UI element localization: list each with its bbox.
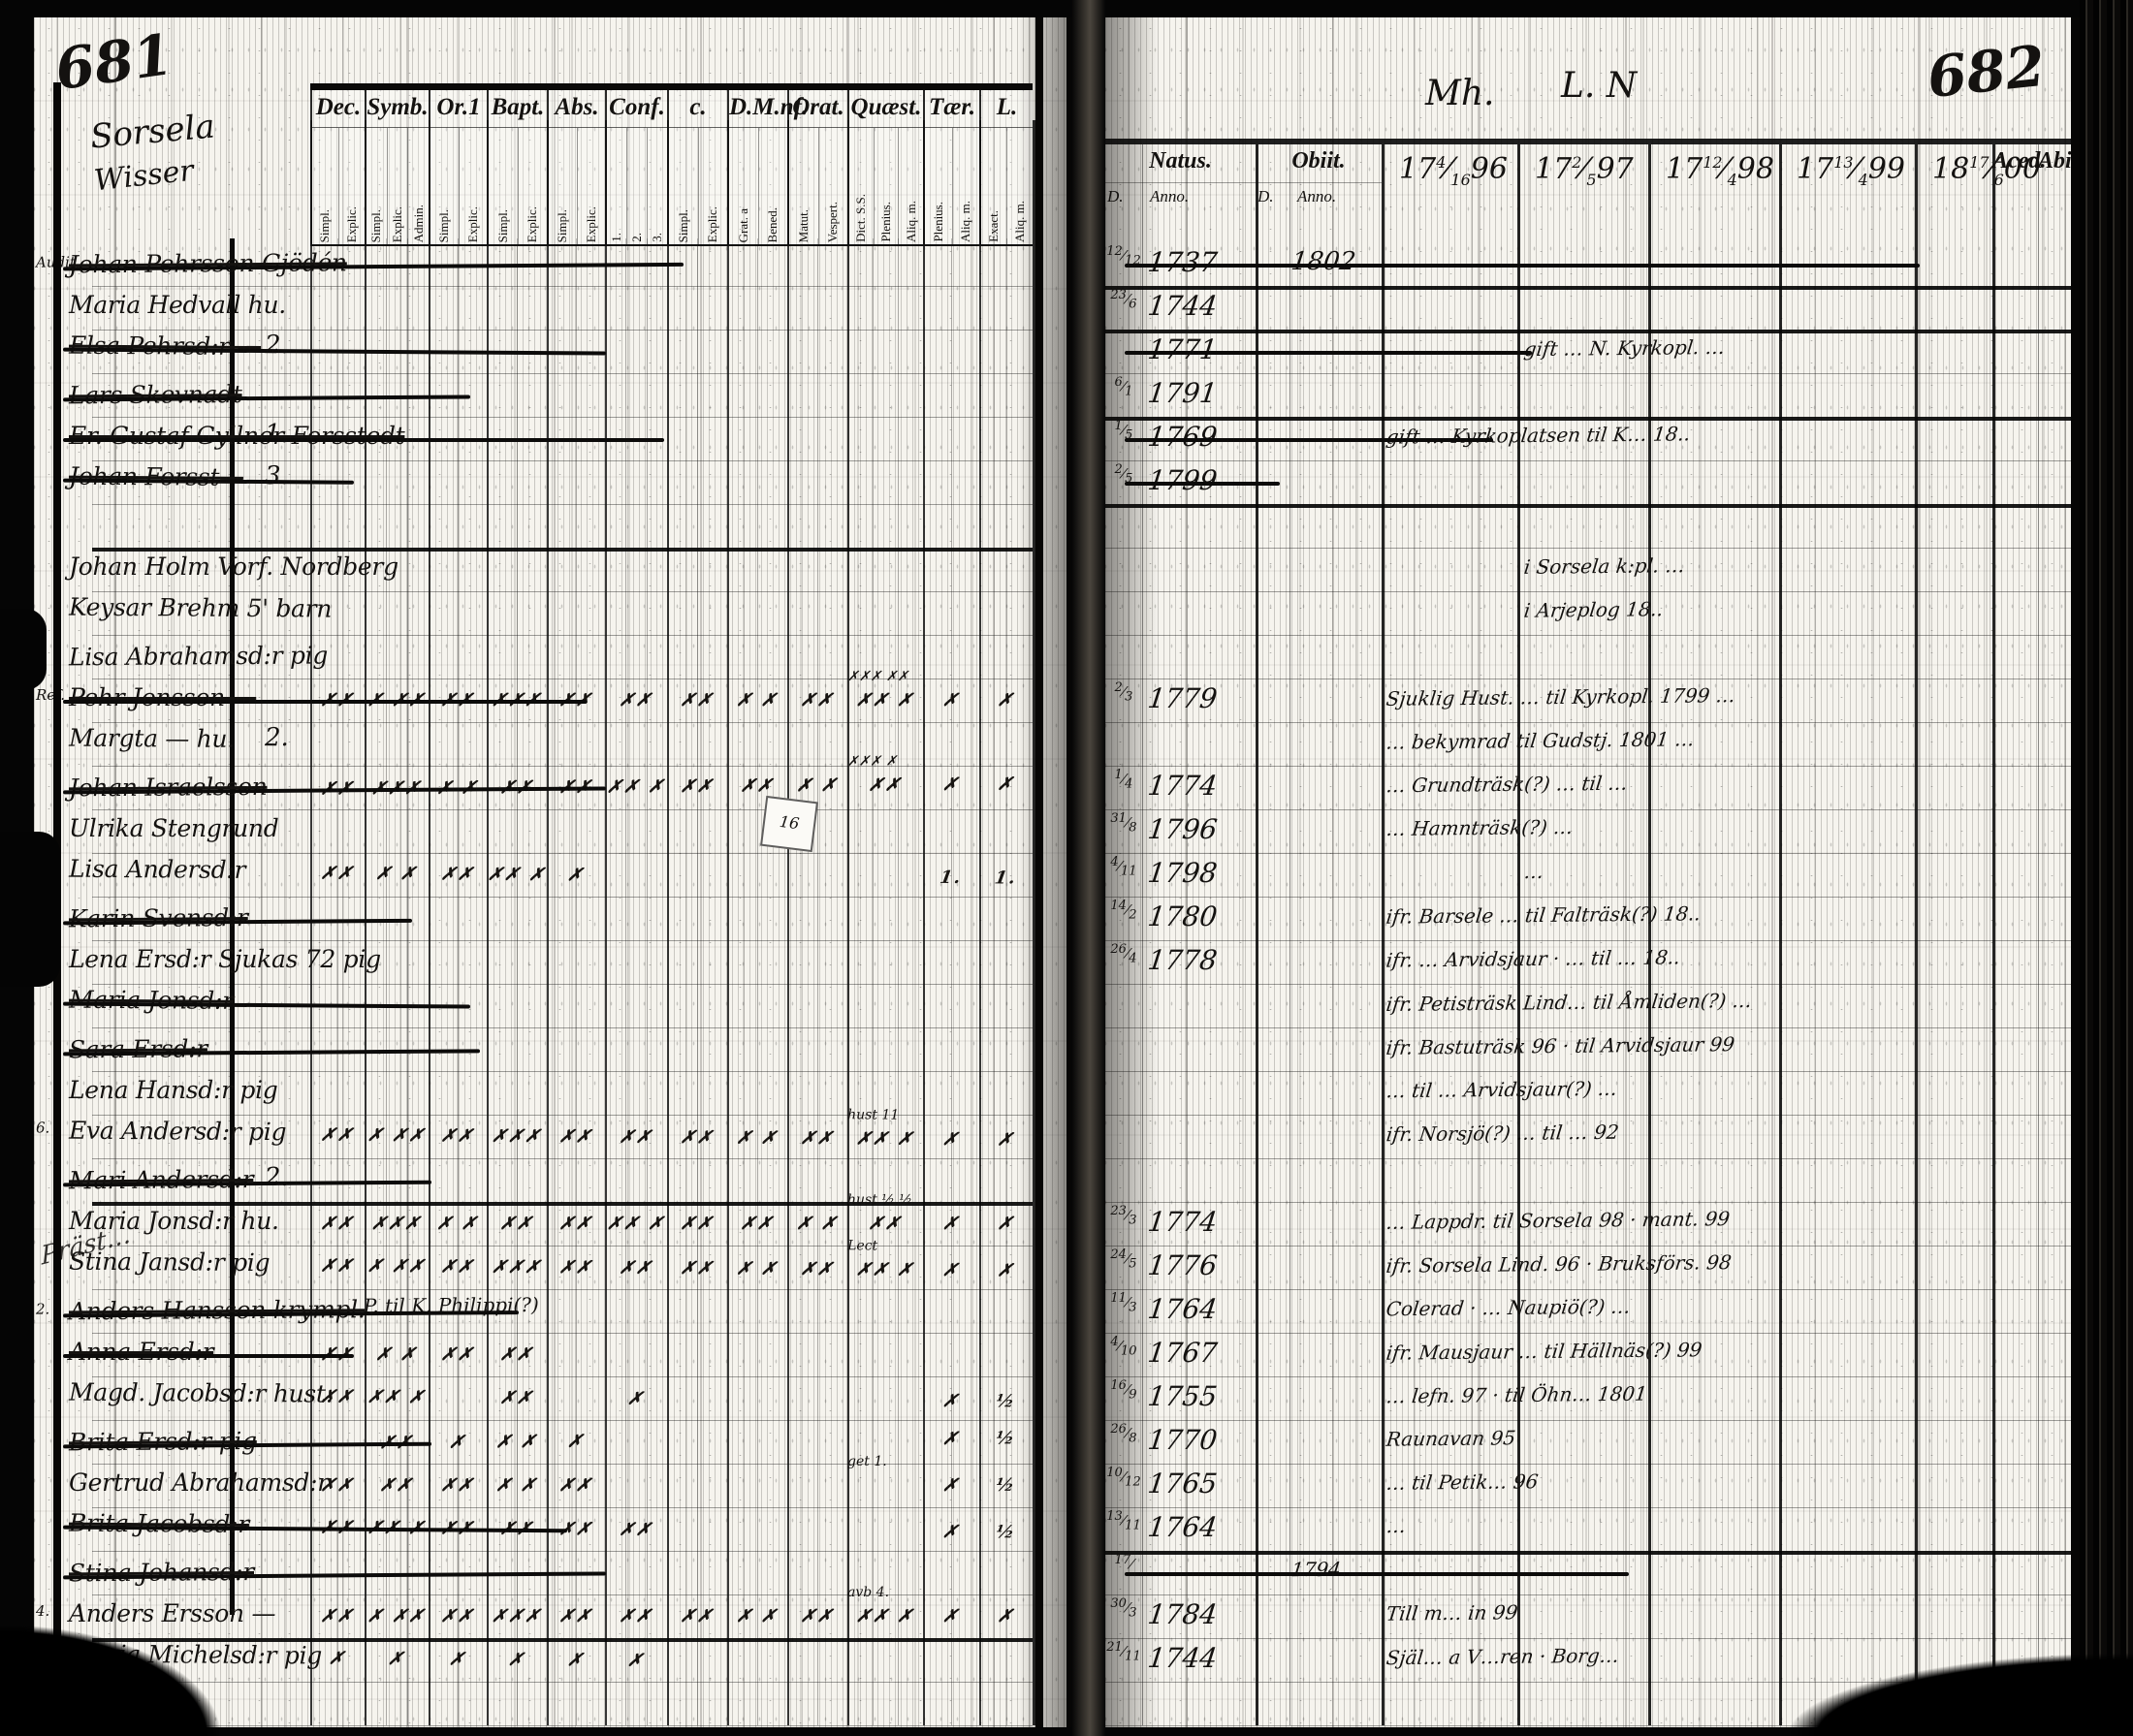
register-row-left: 6.Eva Andersd:r pig✗✗✗ ✗✗✗✗✗✗✗✗✗✗✗✗✗✗ ✗✗… (34, 1111, 1033, 1161)
mark-cell: ✗✗✗ (483, 1246, 550, 1289)
natus-header: Natus. (1105, 148, 1256, 174)
mark-cell (723, 1333, 790, 1376)
mark-cell (601, 854, 670, 898)
register-row-right (1105, 635, 2080, 679)
person-name: Elsa Pehrsd:r — (69, 331, 261, 361)
birth-year: 1769 (1146, 421, 1219, 453)
register-row-left: Johan Israelsson✗✗✗✗✗✗ ✗✗✗✗✗✗✗ ✗✗✗✗✗✗ ✗✗… (34, 762, 1033, 812)
register-row-right: 4⁄101767ifr. Mausjaur … til Hällnäs(?) 9… (1105, 1333, 2080, 1376)
mark-cell: ✗✗ (306, 1374, 367, 1418)
mark-cell (543, 1333, 608, 1376)
mark-cell (723, 1377, 790, 1421)
header-subcolumns: Exact.Aliq. m. (981, 128, 1033, 244)
parish-name-line1: Sorsela (89, 107, 217, 156)
birth-year: 1764 (1146, 1511, 1219, 1543)
mark-cell (723, 1464, 790, 1507)
mark-cell: ✗✗ (425, 1464, 490, 1507)
birth-day: 6⁄1 (1106, 376, 1141, 397)
header-subcolumn: Explic. (459, 128, 488, 244)
strike-line (63, 700, 587, 704)
marks-row: ✗✗✗✗✗✗ (310, 1636, 1033, 1685)
register-row-left: Gertrud Abrahamsd:r✗✗✗✗✗✗✗ ✗✗✗✗½get 1. (34, 1464, 1033, 1507)
person-name: Sara Ersd:r (69, 1034, 207, 1063)
birth-year: 1779 (1146, 682, 1219, 714)
header-column-label: c. (669, 90, 727, 128)
mark-cell: ✗✗ (425, 1245, 490, 1288)
header-subcolumn-label: Aliq. m. (904, 199, 919, 244)
movement-note: 1794 (1290, 1558, 1343, 1582)
marks-row: ✗✗✗✗✗✗✗ ✗✗✗✗½ (310, 1464, 1033, 1507)
header-subcolumn-label: Explic. (584, 205, 599, 244)
register-row-left: 4.Anders Ersson —✗✗✗ ✗✗✗✗✗✗✗✗✗✗✗✗✗✗ ✗✗✗✗… (34, 1594, 1033, 1638)
mark-cell: ✗✗ (601, 1508, 670, 1552)
mark-cell: ✗✗ (306, 1202, 367, 1246)
mark-cell (844, 1378, 926, 1422)
birth-year: 1778 (1146, 944, 1219, 976)
movement-note: ifr. Bastuträsk 96 · til Arvidsjaur 99 (1385, 1032, 1735, 1059)
register-row-left: Lisa Andersd:r✗✗✗ ✗✗✗✗✗ ✗✗1.1. (34, 849, 1033, 900)
mark-cell: ✗✗ ✗ (483, 853, 550, 897)
header-subcolumn: Simpl. (669, 128, 698, 244)
fold-line-1 (1035, 0, 1043, 1736)
mark-cell (844, 1509, 926, 1553)
movement-note: … (1385, 1514, 1408, 1537)
person-name: Er. Gustaf Gyllner Forsstedt (69, 422, 404, 450)
header-column-label: Dec. (312, 90, 365, 128)
mark-cell (783, 1509, 850, 1553)
header-column: Abs.Simpl.Explic. (547, 90, 605, 244)
mark-cell: ✗ (919, 679, 982, 722)
birth-day: 26⁄4 (1106, 943, 1141, 964)
movement-note: … Lappdr. til Sorsela 98 · mant. 99 (1385, 1207, 1731, 1234)
person-name: Johan Pehrsson Gjödén (69, 248, 347, 278)
mark-cell: ✗✗ (601, 1247, 670, 1290)
left-page: 681 Sorsela Wisser Präst… Dec.Simpl.Expl… (34, 17, 1071, 1736)
header-column: Tær.Plenius.Aliq. m. (923, 90, 979, 244)
header-subcolumn-label: Aliq. m. (958, 199, 973, 244)
mark-cell (425, 1375, 490, 1419)
mark-cell (664, 1419, 731, 1463)
register-row-right: 24⁄51776ifr. Sorsela Lind. 96 · Bruksför… (1105, 1246, 2080, 1289)
quaest-note: get 1. (847, 1455, 935, 1469)
strike-line (1125, 264, 1920, 268)
header-subcolumns: Simpl.Explic. (312, 128, 365, 244)
header-subcolumn: Aliq. m. (898, 128, 923, 244)
header-subcolumn-label: Explic. (525, 205, 540, 244)
header-subcolumn-label: Aliq. m. (1012, 199, 1028, 244)
death-year: 1802 (1289, 247, 1357, 276)
quaest-note: avb 4. (847, 1586, 935, 1600)
person-name: Lisa Abrahamsd:r pig (69, 641, 328, 671)
register-row-right: 23⁄61744 (1105, 286, 2080, 330)
movement-note: … bekymrad til Gudstj. 1801 … (1385, 727, 1695, 753)
natus-anno-sub: Anno. (1150, 187, 1189, 206)
obiit-day-sub: D. (1258, 187, 1274, 206)
mark-cell: ✗ (483, 1638, 550, 1682)
mark-cell (783, 1333, 850, 1376)
register-row-left: Sara Ersd:r (34, 1024, 1033, 1074)
mark-cell: ✗ ✗✗ (361, 1245, 431, 1288)
natus-day-sub: D. (1107, 187, 1124, 206)
mark-cell: ✗ (975, 1594, 1035, 1638)
birth-day: 30⁄3 (1106, 1597, 1141, 1619)
birth-year: 1755 (1146, 1380, 1219, 1412)
birth-year: 1780 (1146, 900, 1219, 932)
register-row-right: 1771gift … N. Kyrkopl. … (1105, 330, 2080, 373)
year-column-header: 174⁄1696 (1399, 152, 1508, 189)
birth-year: 1744 (1146, 1642, 1219, 1674)
mark-cell: ✗ (975, 1202, 1035, 1246)
header-subcolumn: 2. (626, 128, 647, 244)
strike-line (1125, 1572, 1629, 1576)
movement-note: ifr. Barsele … til Falträsk(?) 18.. (1385, 901, 1702, 928)
mark-cell: ✗ (306, 1636, 367, 1680)
birth-year: 1737 (1146, 246, 1219, 278)
mark-cell (663, 854, 730, 898)
mark-cell: ✗ (976, 762, 1036, 805)
mark-cell: ✗✗ (783, 1247, 850, 1291)
register-row-right (1105, 504, 2080, 548)
mark-cell: ✗✗ ✗ (602, 765, 671, 808)
movement-note: ifr. Mausjaur … til Hällnäs(?) 99 (1385, 1338, 1703, 1364)
birth-year: 1799 (1146, 464, 1219, 496)
mark-cell: ✗✗ (723, 1202, 790, 1246)
mark-cell: ✗✗ (663, 1202, 730, 1246)
marks-row: ✗✗✗ ✗✗✗✗✗ ✗✗1.1. (310, 851, 1033, 900)
marks-row: ✗✗✗✗ ✗✗✗✗✗½ (310, 1374, 1033, 1423)
header-subcolumn-label: Grat. a (736, 206, 751, 244)
mark-cell (602, 1419, 671, 1463)
header-sub-line (1105, 182, 1382, 183)
person-name: Lena Hansd:r pig (69, 1076, 278, 1104)
mark-cell: ✗ (544, 1419, 609, 1463)
mark-cell: ✗ (543, 1638, 608, 1682)
register-row-right: 23⁄31774… Lappdr. til Sorsela 98 · mant.… (1105, 1202, 2080, 1246)
header-subcolumn: Explic. (338, 128, 366, 244)
register-row-right: 10⁄121765… til Petik… 96 (1105, 1464, 2080, 1507)
register-row-right: … bekymrad til Gudstj. 1801 … (1105, 722, 2080, 766)
scan-edge-bottom (0, 1727, 2133, 1736)
person-name: Lisa Andersd:r (69, 855, 245, 884)
register-row-right: 2⁄31779Sjuklig Hust. … til Kyrkopl. 1799… (1105, 679, 2080, 722)
header-subcolumn: Explic. (518, 128, 548, 244)
register-row-right: 2⁄51799 (1105, 460, 2080, 504)
person-name: Gertrud Abrahamsd:r (69, 1468, 329, 1497)
header-subcolumns: Dict. S.S.Plenius.Aliq. m. (849, 128, 923, 244)
header-column-label: Abs. (549, 90, 605, 128)
header-subcolumn-label: Bened. (765, 205, 780, 244)
birth-day: 4⁄11 (1106, 856, 1141, 877)
header-column: L.Exact.Aliq. m. (979, 90, 1033, 244)
person-name: Anna Ersd:r (69, 1338, 213, 1366)
mark-cell: ✗ ✗ (361, 852, 431, 896)
quaest-note: Lect (847, 1239, 935, 1254)
header-subcolumn-label: Simpl. (676, 207, 691, 244)
mark-cell: ✗ (975, 679, 1035, 722)
header-subcolumn-label: Plenius. (931, 200, 946, 244)
birth-day: 16⁄9 (1106, 1379, 1141, 1401)
birth-year: 1744 (1146, 290, 1219, 322)
mark-cell (723, 854, 790, 898)
mark-cell (844, 1333, 926, 1376)
right-page: 682 Mh. L. N Natus.Obiit.Aced.Abit.D.Ann… (1105, 17, 2080, 1736)
person-name: Anders Ersson — (69, 1599, 275, 1627)
row-line (1105, 1725, 2080, 1726)
mark-cell (601, 1333, 670, 1376)
mark-cell (724, 1418, 791, 1462)
mark-cell (844, 1640, 926, 1684)
margin-note: 6. (36, 1119, 67, 1136)
clamp-mark-lower (0, 832, 60, 987)
header-column: D.M.nf.Grat. aBened. (727, 90, 787, 244)
register-row-left: Maria Jonsd:r (34, 980, 1033, 1030)
mark-cell: ✗ ✗ (361, 1333, 431, 1376)
person-name: Stina Johansd:r (69, 1558, 254, 1587)
header-subcolumn: 3. (647, 128, 667, 244)
birth-day: 2⁄3 (1106, 681, 1141, 703)
marks-row: ✗✗✗ ✗✗✗✗✗ (310, 1333, 1033, 1376)
header-subcolumn: Simpl. (430, 128, 459, 244)
header-column: Dec.Simpl.Explic. (310, 90, 365, 244)
mark-cell: ✗ ✗ (723, 1116, 790, 1159)
register-row-left: Elsa Pehrsd:r —2. (34, 326, 1033, 376)
header-column-label: Conf. (607, 90, 667, 128)
person-name: Lena Ersd:r Sjukas 72 pig (69, 945, 381, 973)
right-page-number: 682 (1925, 33, 2049, 110)
header-subcolumn: Simpl. (312, 128, 338, 244)
header-column-label: Quæst. (849, 90, 923, 128)
birth-day: 26⁄8 (1106, 1423, 1141, 1444)
mark-cell: ✗✗ ✗ (844, 679, 926, 722)
register-row-right: 30⁄31784Till m… in 99 (1105, 1594, 2080, 1638)
mark-cell (783, 855, 850, 899)
header-subcolumn: Explic. (698, 128, 728, 244)
mark-cell: ✗✗ (783, 679, 850, 722)
mark-cell: ✗✗ (306, 1594, 367, 1638)
header-column: Symb.Simpl.Explic.Admin. (365, 90, 429, 244)
movement-note: … Grundträsk(?) … til … (1385, 772, 1629, 798)
birth-day: 1⁄4 (1106, 769, 1141, 790)
mark-cell: ✗✗ (306, 1113, 367, 1156)
header-subcolumn: Grat. a (729, 128, 758, 244)
person-name: Maria Jonsd:r (69, 986, 234, 1015)
mark-cell: ✗✗ (783, 1594, 850, 1638)
header-subcolumns: 1.2.3. (607, 128, 667, 244)
header-subcolumn-label: Explic. (344, 205, 360, 244)
register-row-left: Stina Jansd:r pig✗✗✗ ✗✗✗✗✗✗✗✗✗✗✗✗✗✗ ✗✗✗✗… (34, 1242, 1033, 1292)
person-name: Johan Israelsson (69, 773, 268, 802)
scan-edge-right (2080, 0, 2133, 1736)
movement-note: ifr. … Arvidsjaur · … til … 18.. (1385, 945, 1681, 971)
birth-day: 11⁄3 (1106, 1292, 1141, 1313)
right-header: Natus.Obiit.Aced.Abit.D.Anno.D.Anno.174⁄… (1105, 139, 2080, 144)
mark-cell (975, 1333, 1035, 1376)
birth-day: 4⁄10 (1106, 1336, 1141, 1357)
header-subcolumns: Simpl.Explic. (489, 128, 547, 244)
header-subcolumn-label: Simpl. (495, 207, 511, 244)
quaest-note: ✗✗✗ ✗ (847, 754, 935, 770)
mark-cell (663, 1508, 730, 1552)
mark-cell (783, 1378, 850, 1422)
register-row-left: Magd. Jacobsd:r hust.✗✗✗✗ ✗✗✗✗✗½ (34, 1373, 1033, 1423)
birth-year: 1774 (1146, 1206, 1219, 1238)
quaest-note: ✗✗✗ ✗✗ (847, 670, 935, 684)
birth-year: 1765 (1146, 1468, 1219, 1499)
header-subcolumn: Vespert. (818, 128, 848, 244)
paper-repair-tag: 16 (760, 796, 818, 852)
header-column: Conf.1.2.3. (605, 90, 667, 244)
register-row-right: ifr. Norsjö(?) … til … 92 (1105, 1115, 2080, 1158)
register-row-left: Maria Michelsd:r pig✗✗✗✗✗✗ (34, 1634, 1033, 1685)
mark-cell: ✗✗ (601, 679, 670, 722)
header-subcolumn-label: Simpl. (555, 207, 570, 244)
birth-year: 1784 (1146, 1598, 1219, 1630)
header-column-label: Bapt. (489, 90, 547, 128)
register-row-right: i Arjeplog 18.. (1105, 591, 2080, 635)
mark-cell: ✗✗ (543, 1246, 608, 1289)
year-column-header: 1712⁄498 (1666, 152, 1774, 189)
header-subcolumn-label: Vespert. (825, 200, 841, 244)
movement-note: … til … Arvidsjaur(?) … (1385, 1077, 1619, 1102)
register-row-left: Ref.Pehr Jonsson —✗✗✗ ✗✗✗✗✗✗✗✗✗✗✗✗✗✗ ✗✗✗… (34, 679, 1033, 722)
header-column-label: Symb. (366, 90, 429, 128)
header-subcolumn: Explic. (577, 128, 606, 244)
strike-line (1125, 438, 1493, 442)
mark-cell: ✗ (601, 1377, 670, 1421)
mark-cell: ✗ (426, 1420, 491, 1464)
mark-cell: ✗✗ (306, 1464, 367, 1507)
mark-cell: ✗ ✗✗ (361, 1114, 431, 1157)
header-subcolumns: Simpl.Explic.Admin. (366, 128, 429, 244)
birth-day: 21⁄11 (1106, 1641, 1141, 1662)
mark-cell: ½ (975, 1464, 1035, 1507)
header-subcolumns: Simpl.Explic. (430, 128, 487, 244)
mark-cell (543, 1376, 608, 1420)
marks-row: ✗✗✗✗✗✗ ✗✗✗✗✗✗✗ ✗✗✗✗✗✗ ✗✗✗✗✗ (310, 762, 1033, 810)
mark-cell (784, 1418, 851, 1462)
register-row-right: … til … Arvidsjaur(?) … (1105, 1071, 2080, 1115)
header-column-label: Or.1 (430, 90, 487, 128)
movement-note: … lefn. 97 · til Öhn… 1801 (1385, 1382, 1648, 1408)
mark-cell: ✗ ✗ (484, 1420, 551, 1464)
birth-year: 1791 (1146, 377, 1219, 409)
header-column: Or.1Simpl.Explic. (429, 90, 487, 244)
person-name: Lars Skevnadt (69, 380, 242, 409)
header-subcolumn: Aliq. m. (952, 128, 980, 244)
mark-cell: ✗ ✗ (723, 679, 790, 722)
top-annotation-1: Mh. (1425, 74, 1495, 113)
mark-cell: ✗✗ (601, 1116, 670, 1159)
mark-cell: ✗✗ ✗ (601, 1202, 670, 1246)
header-subcolumn-label: Simpl. (317, 207, 333, 244)
birth-day: 24⁄5 (1106, 1248, 1141, 1270)
year-column-header: 1713⁄499 (1797, 152, 1905, 189)
top-annotation-2: L. N (1561, 66, 1637, 106)
register-row-left: Lena Ersd:r Sjukas 72 pig (34, 940, 1033, 984)
strike-line (1125, 351, 1532, 355)
header-subcolumn-label: Simpl. (436, 207, 452, 244)
register-row-right: 12⁄1217371802 (1105, 242, 2080, 286)
birth-year: 1774 (1146, 770, 1219, 802)
mark-cell: ✗✗ ✗ (361, 1375, 431, 1419)
birth-day: 13⁄11 (1106, 1510, 1141, 1531)
mark-cell: ✗ (543, 853, 608, 897)
register-row-right: 14⁄21780ifr. Barsele … til Falträsk(?) 1… (1105, 897, 2080, 940)
register-row-right: 26⁄41778ifr. … Arvidsjaur · … til … 18.. (1105, 940, 2080, 984)
header-subcolumns: Matut.Vespert. (789, 128, 847, 244)
year-column-header: 172⁄597 (1535, 152, 1634, 189)
register-row-right: 26⁄81770Raunavan 95 (1105, 1420, 2080, 1464)
header-column-label: D.M.nf. (729, 90, 787, 128)
mark-cell: ✗✗ (663, 1247, 730, 1290)
header-subcolumn: Explic. (387, 128, 408, 244)
mark-cell (663, 1333, 730, 1376)
year-column-header: 1817⁄600 (1932, 152, 2041, 189)
header-column: Quæst.Dict. S.S.Plenius.Aliq. m. (847, 90, 923, 244)
mark-cell (783, 1640, 850, 1684)
person-name: Eva Andersd:r pig (69, 1117, 286, 1147)
register-row-right: 13⁄111764… (1105, 1507, 2080, 1551)
birth-day: 10⁄12 (1106, 1467, 1141, 1488)
mark-cell: ✗ (919, 1594, 982, 1638)
register-row-left: Ulrika Stengrund (34, 809, 1033, 853)
register-row-left: Er. Gustaf Gyllner Forsstedt1. (34, 417, 1033, 460)
movement-note: i Arjeplog 18.. (1523, 597, 1665, 621)
register-row-right: i Sorsela k:pl. … (1105, 548, 2080, 591)
mark-cell (783, 1464, 850, 1507)
mark-cell: ✗ ✗ (425, 1202, 490, 1246)
header-subcolumn-label: Explic. (390, 205, 405, 244)
register-row-left: Maria Hedvall hu. (34, 286, 1033, 330)
mark-cell: ✗ (919, 1464, 982, 1507)
register-row-right: 21⁄111744Själ… a V…ren · Borg… (1105, 1638, 2080, 1682)
header-subcolumn: Bened. (758, 128, 788, 244)
mark-cell: ✗✗ (483, 1202, 550, 1246)
obiit-header: Obiit. (1256, 148, 1382, 174)
register-row-left: Karin Svensd:r (34, 893, 1033, 943)
mark-cell: ✗✗✗ (483, 1594, 550, 1638)
register-row-right: 16⁄91755… lefn. 97 · til Öhn… 1801 (1105, 1376, 2080, 1420)
movement-note: Själ… a V…ren · Borg… (1385, 1644, 1621, 1670)
header-subcolumns: Simpl.Explic. (549, 128, 605, 244)
birth-year: 1764 (1146, 1293, 1219, 1325)
mark-cell: ✗✗ (543, 1464, 608, 1507)
header-subcolumn-label: Matut. (796, 207, 812, 244)
strike-line (63, 1354, 354, 1358)
register-row-left (34, 500, 1033, 551)
header-subcolumn: Plenius. (925, 128, 952, 244)
mark-cell (663, 1464, 730, 1507)
mark-cell: ✗ (920, 763, 983, 806)
marks-row: ✗✗✗ ✗✗✗✗✗✗✗✗✗✗✗✗✗✗ ✗✗✗✗✗ ✗✗✗ (310, 1594, 1033, 1638)
mark-cell: ✗✗ ✗ (844, 1117, 926, 1160)
register-row-right: 1⁄41774… Grundträsk(?) … til … (1105, 766, 2080, 809)
mark-cell: ✗ (601, 1639, 670, 1683)
movement-note: Raunavan 95 (1385, 1426, 1517, 1450)
header-column-label: L. (981, 90, 1033, 128)
mark-cell (723, 1639, 790, 1683)
person-name: Mari Andersd:r (69, 1165, 254, 1194)
mark-cell: ✗✗ (783, 1117, 850, 1160)
header-column: Orat.Matut.Vespert. (787, 90, 847, 244)
person-name: Ulrika Stengrund (69, 814, 278, 842)
mark-cell: ✗✗ (663, 679, 730, 722)
header-subcolumn: Matut. (789, 128, 818, 244)
obiit-anno-sub: Anno. (1297, 187, 1336, 206)
register-row-left: Johan Forsst—3. (34, 457, 1033, 507)
movement-note: Sjuklig Hust. … til Kyrkopl. 1799 … (1385, 683, 1736, 710)
left-page-number: 681 (51, 21, 176, 103)
